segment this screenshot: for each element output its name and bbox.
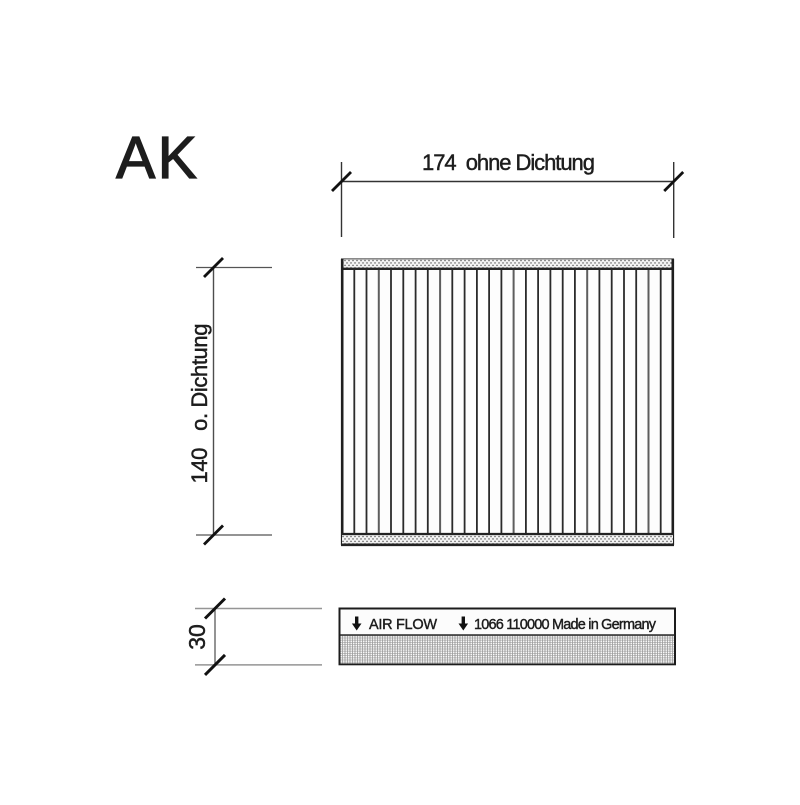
svg-text:AIR FLOW: AIR FLOW <box>369 617 437 633</box>
svg-text:140 o. Dichtung: 140 o. Dichtung <box>187 324 212 484</box>
svg-text:30: 30 <box>184 624 210 650</box>
svg-text:1066 110000 Made in Germany: 1066 110000 Made in Germany <box>474 617 657 633</box>
svg-text:174 ohne Dichtung: 174 ohne Dichtung <box>422 150 595 175</box>
